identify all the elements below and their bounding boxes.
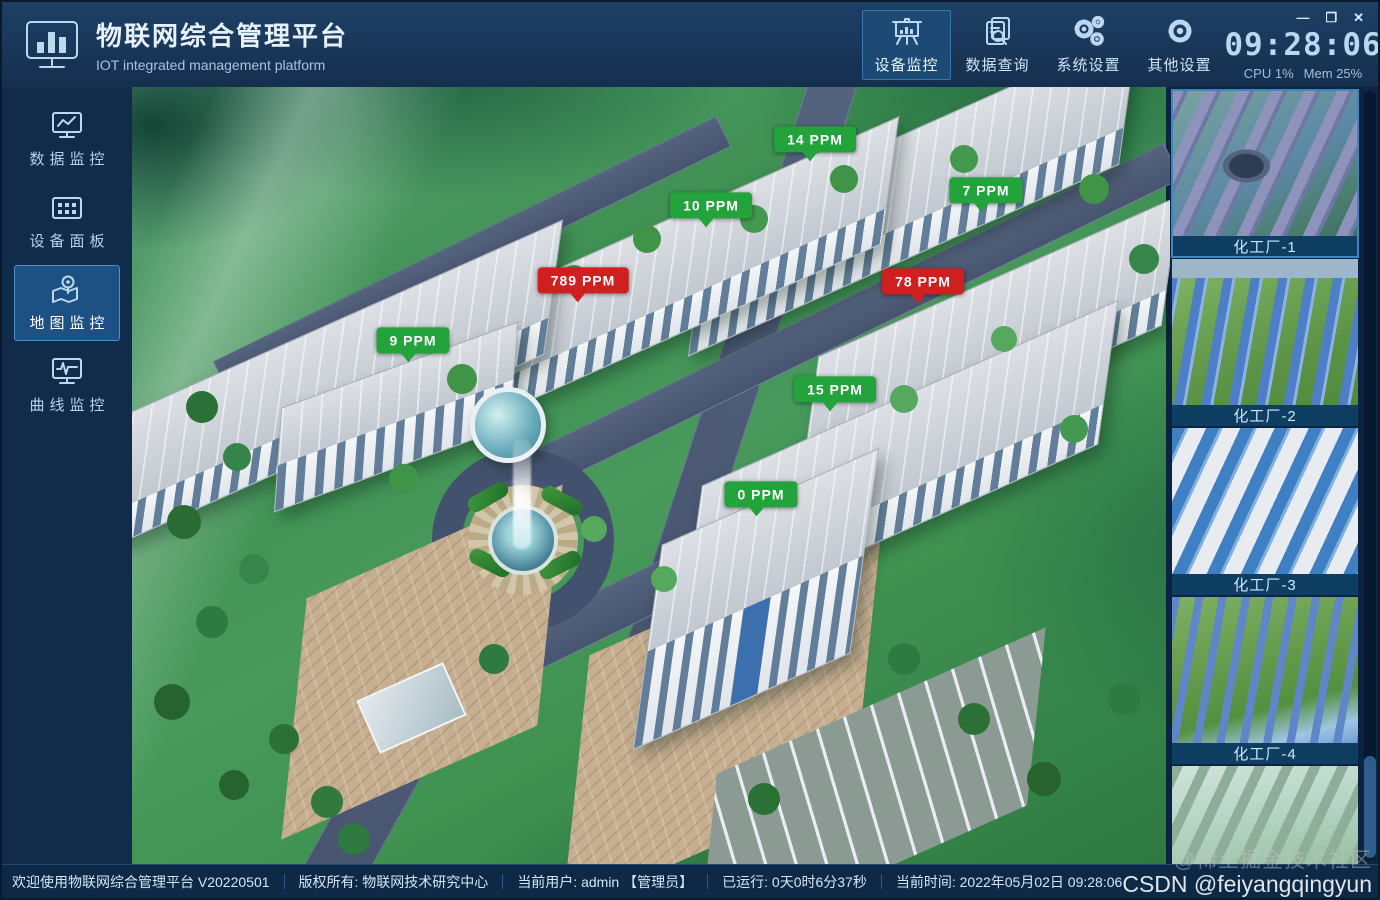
sidebar: 数据监控 设备面板 地图监控 曲线监控 — [2, 87, 132, 864]
statusbar-divider — [707, 874, 708, 889]
marker-tail — [400, 351, 418, 362]
plant-thumbnail-caption: 化工厂-2 — [1172, 405, 1358, 426]
ppm-marker-label: 9 PPM — [376, 327, 449, 353]
page-subtitle: IOT integrated management platform — [96, 57, 348, 73]
ppm-marker-label: 10 PPM — [670, 192, 752, 218]
sidebar-item-data-monitor[interactable]: 数据监控 — [14, 101, 120, 177]
marker-tail — [821, 400, 839, 411]
ppm-marker-label: 789 PPM — [538, 267, 629, 293]
plant-thumbnail-caption: 化工厂-4 — [1172, 743, 1358, 764]
plant-thumbnail-1[interactable]: 化工厂-1 — [1172, 90, 1358, 257]
clock-panel: — ❐ ✕ 09:28:06 CPU 1% Mem 25% — [1234, 9, 1372, 81]
window-controls: — ❐ ✕ — [1296, 11, 1364, 25]
marker-tail — [697, 216, 715, 227]
plant-thumbnail-caption: 化工厂-3 — [1172, 574, 1358, 595]
device-board-icon — [889, 15, 925, 49]
maximize-button[interactable]: ❐ — [1325, 11, 1337, 25]
ppm-marker-label: 78 PPM — [882, 268, 964, 294]
plant-thumbnail-image — [1172, 90, 1358, 236]
ppm-marker[interactable]: 9 PPM — [376, 327, 449, 353]
marker-tail — [801, 150, 819, 161]
plant-thumbnail-caption: 化工厂-1 — [1172, 236, 1358, 257]
nav-other-settings-button[interactable]: 其他设置 — [1135, 10, 1224, 80]
ppm-marker-label: 0 PPM — [724, 481, 797, 507]
cpu-usage: CPU 1% — [1244, 66, 1294, 81]
ppm-marker[interactable]: 15 PPM — [794, 376, 876, 402]
nav-label: 数据查询 — [965, 54, 1029, 75]
data-search-icon — [980, 15, 1016, 49]
welcome-text: 欢迎使用物联网综合管理平台 V20220501 — [12, 872, 270, 892]
current-time: 当前时间: 2022年05月02日 09:28:06 — [896, 872, 1122, 892]
ppm-marker[interactable]: 789 PPM — [538, 267, 629, 293]
map-pin-icon — [49, 274, 85, 306]
uptime-text: 已运行: 0天0时6分37秒 — [722, 872, 867, 892]
sidebar-item-map-monitor[interactable]: 地图监控 — [14, 265, 120, 341]
ppm-marker[interactable]: 7 PPM — [949, 177, 1022, 203]
close-button[interactable]: ✕ — [1353, 11, 1364, 25]
ppm-marker-label: 7 PPM — [949, 177, 1022, 203]
scrollbar-thumb[interactable] — [1364, 756, 1376, 858]
sidebar-item-device-panel[interactable]: 设备面板 — [14, 183, 120, 259]
bar-chart-monitor-icon — [23, 18, 81, 72]
map-view: 14 PPM 7 PPM 10 PPM 789 PPM 78 PPM 9 PPM… — [132, 87, 1170, 864]
ppm-marker-label: 15 PPM — [794, 376, 876, 402]
statusbar: 欢迎使用物联网综合管理平台 V20220501 版权所有: 物联网技术研究中心 … — [2, 864, 1378, 898]
ppm-marker[interactable]: 78 PPM — [882, 268, 964, 294]
copyright-text: 版权所有: 物联网技术研究中心 — [299, 872, 489, 892]
statusbar-divider — [284, 874, 285, 889]
gears-icon — [1071, 15, 1107, 49]
ppm-marker[interactable]: 14 PPM — [774, 126, 856, 152]
ppm-marker[interactable]: 10 PPM — [670, 192, 752, 218]
plant-thumbnail-2[interactable]: 化工厂-2 — [1172, 259, 1358, 426]
current-user: 当前用户: admin 【管理员】 — [517, 872, 693, 892]
system-load: CPU 1% Mem 25% — [1244, 66, 1362, 81]
application-window: 物联网综合管理平台 IOT integrated management plat… — [0, 0, 1380, 900]
marker-tail — [973, 201, 991, 212]
map-fountain-jet — [513, 439, 531, 549]
panel-grid-icon — [49, 192, 85, 224]
plant-thumbnail-image — [1172, 766, 1358, 864]
minimize-button[interactable]: — — [1296, 11, 1309, 25]
nav-label: 设备监控 — [874, 54, 938, 75]
app-logo — [20, 18, 84, 72]
plant-thumbnail-4[interactable]: 化工厂-4 — [1172, 597, 1358, 764]
sidebar-item-label: 数据监控 — [24, 148, 109, 169]
nav-label: 其他设置 — [1147, 54, 1211, 75]
nav-label: 系统设置 — [1056, 54, 1120, 75]
top-navigation: 设备监控 数据查询 系统设置 — [862, 10, 1224, 80]
marker-tail — [748, 505, 766, 516]
marker-tail — [569, 291, 587, 302]
map-glass-tower — [470, 387, 546, 463]
nav-data-query-button[interactable]: 数据查询 — [953, 10, 1042, 80]
scrollbar-track[interactable] — [1364, 91, 1376, 860]
sidebar-item-label: 曲线监控 — [24, 394, 109, 415]
gear-icon — [1162, 15, 1198, 49]
plant-thumbnail-image — [1172, 597, 1358, 743]
ppm-marker[interactable]: 0 PPM — [724, 481, 797, 507]
monitor-line-icon — [49, 110, 85, 142]
sidebar-item-curve-monitor[interactable]: 曲线监控 — [14, 347, 120, 423]
nav-system-settings-button[interactable]: 系统设置 — [1044, 10, 1133, 80]
statusbar-divider — [502, 874, 503, 889]
sidebar-item-label: 设备面板 — [24, 230, 109, 251]
plant-thumbnail-image — [1172, 259, 1358, 405]
monitor-curve-icon — [49, 356, 85, 388]
plant-thumbnail-image — [1172, 428, 1358, 574]
sidebar-item-label: 地图监控 — [24, 312, 109, 333]
marker-tail — [909, 292, 927, 303]
plant-list: 化工厂-1 化工厂-2 化工厂-3 化工厂-4 — [1166, 87, 1378, 864]
plant-thumbnail-3[interactable]: 化工厂-3 — [1172, 428, 1358, 595]
map-trees — [132, 87, 152, 107]
plant-thumbnail-5[interactable] — [1172, 766, 1358, 864]
digital-clock: 09:28:06 — [1224, 27, 1380, 63]
nav-device-monitor-button[interactable]: 设备监控 — [862, 10, 951, 80]
page-title: 物联网综合管理平台 — [96, 16, 348, 53]
ppm-marker-label: 14 PPM — [774, 126, 856, 152]
header: 物联网综合管理平台 IOT integrated management plat… — [2, 2, 1378, 87]
mem-usage: Mem 25% — [1304, 66, 1363, 81]
app-titles: 物联网综合管理平台 IOT integrated management plat… — [96, 16, 348, 73]
statusbar-divider — [881, 874, 882, 889]
